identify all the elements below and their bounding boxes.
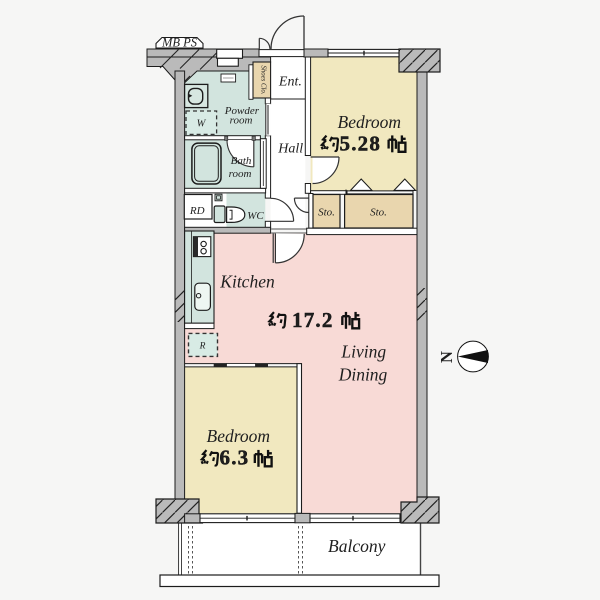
- svg-text:room: room: [229, 168, 252, 180]
- svg-text:room: room: [230, 114, 253, 126]
- svg-text:Hall: Hall: [277, 141, 303, 156]
- svg-text:Shoes Clo.: Shoes Clo.: [260, 65, 267, 94]
- svg-text:6.3: 6.3: [220, 446, 250, 470]
- svg-text:WC: WC: [247, 210, 264, 222]
- svg-text:Ent.: Ent.: [278, 74, 302, 89]
- svg-text:Sto.: Sto.: [370, 207, 387, 219]
- svg-text:Bedroom: Bedroom: [338, 112, 402, 132]
- svg-text:Dining: Dining: [338, 365, 388, 385]
- svg-text:Kitchen: Kitchen: [219, 272, 275, 292]
- svg-text:Living: Living: [340, 342, 386, 362]
- svg-text:Balcony: Balcony: [328, 536, 386, 556]
- svg-text:N: N: [437, 351, 456, 363]
- svg-text:RD: RD: [189, 205, 205, 217]
- svg-text:17.2: 17.2: [292, 308, 334, 332]
- svg-text:MB PS: MB PS: [161, 36, 198, 50]
- svg-text:5.28: 5.28: [340, 131, 382, 155]
- svg-text:Bedroom: Bedroom: [207, 426, 271, 446]
- svg-text:Sto.: Sto.: [318, 207, 335, 219]
- svg-text:R: R: [199, 342, 206, 352]
- svg-text:Bath: Bath: [231, 155, 252, 167]
- svg-text:W: W: [197, 119, 207, 130]
